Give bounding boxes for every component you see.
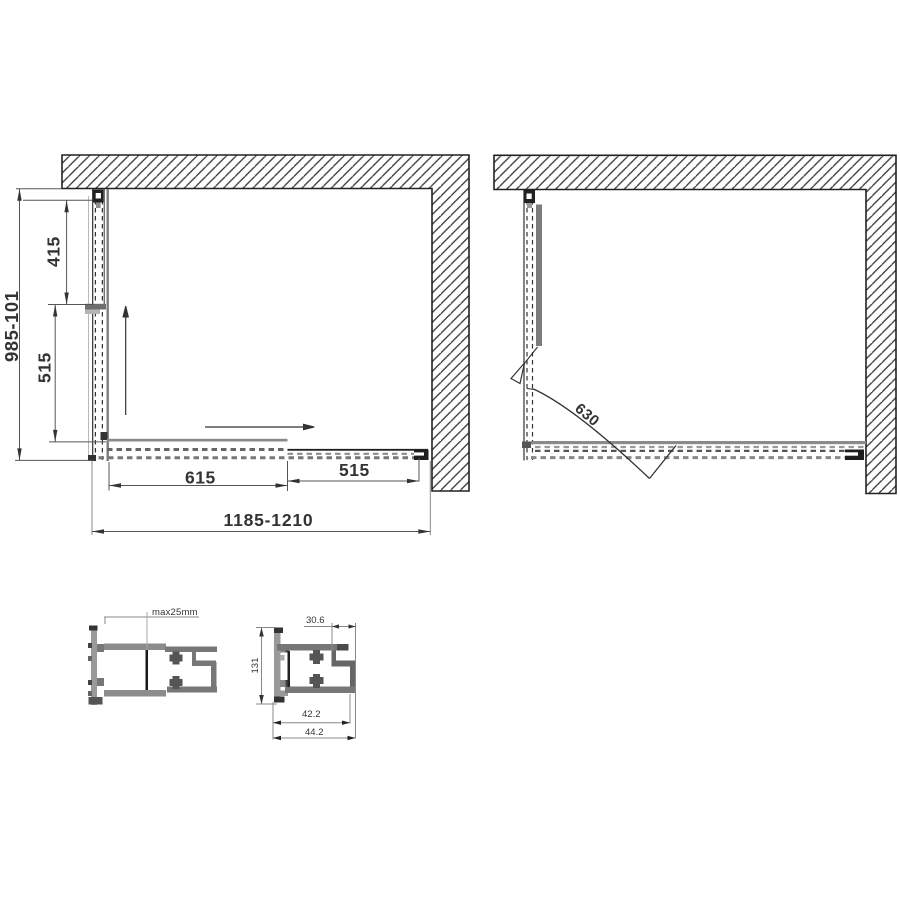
svg-text:42.2: 42.2 [302,709,321,720]
svg-text:44.2: 44.2 [305,727,324,738]
svg-text:515: 515 [35,352,55,383]
svg-text:131: 131 [250,658,261,674]
svg-text:1185-1210: 1185-1210 [224,510,314,530]
svg-text:max25mm: max25mm [152,607,198,618]
svg-text:515: 515 [339,460,370,480]
svg-text:985-101: 985-101 [1,291,22,362]
svg-text:415: 415 [44,236,64,267]
svg-text:615: 615 [185,468,216,488]
svg-text:30.6: 30.6 [306,615,325,626]
